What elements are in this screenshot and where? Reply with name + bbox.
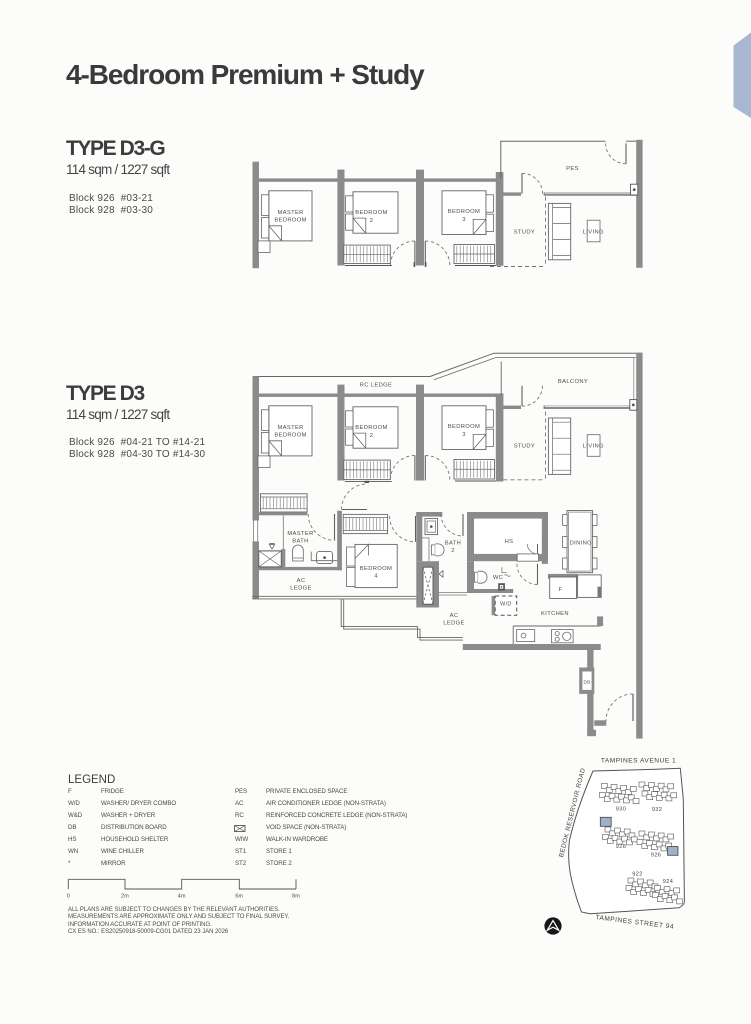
- svg-text:2m: 2m: [121, 894, 129, 900]
- svg-text:BEDROOM: BEDROOM: [355, 210, 387, 216]
- svg-text:LEDGE: LEDGE: [443, 621, 464, 627]
- svg-text:924: 924: [663, 879, 673, 885]
- svg-text:BEDROOM: BEDROOM: [274, 217, 306, 223]
- svg-text:BEDROOM: BEDROOM: [274, 432, 306, 438]
- svg-text:3: 3: [462, 217, 466, 223]
- svg-text:DB: DB: [583, 680, 590, 685]
- svg-text:3: 3: [462, 432, 466, 438]
- svg-text:F: F: [559, 587, 563, 593]
- svg-text:2: 2: [370, 218, 374, 224]
- svg-text:MASTER: MASTER: [277, 210, 303, 216]
- svg-text:RC LEDGE: RC LEDGE: [360, 383, 392, 389]
- svg-text:PES: PES: [566, 166, 579, 172]
- svg-text:KITCHEN: KITCHEN: [541, 611, 569, 617]
- svg-text:TAMPINES AVENUE 1: TAMPINES AVENUE 1: [601, 758, 676, 765]
- svg-text:928: 928: [616, 844, 626, 850]
- svg-text:STUDY: STUDY: [514, 444, 535, 450]
- svg-text:930: 930: [616, 807, 626, 813]
- svg-text:BEDROOM: BEDROOM: [448, 209, 480, 215]
- svg-text:STUDY: STUDY: [514, 230, 535, 236]
- svg-text:BATH: BATH: [292, 538, 308, 544]
- svg-text:W/D: W/D: [500, 602, 512, 608]
- svg-text:4: 4: [374, 574, 378, 580]
- svg-text:BATH: BATH: [445, 541, 461, 547]
- svg-text:DINING: DINING: [570, 541, 593, 547]
- svg-text:2: 2: [451, 548, 455, 554]
- svg-text:HS: HS: [505, 539, 514, 545]
- svg-text:WC: WC: [493, 575, 503, 581]
- svg-text:6m: 6m: [235, 894, 243, 900]
- svg-text:0: 0: [67, 894, 70, 900]
- svg-text:922: 922: [632, 871, 642, 877]
- svg-text:TAMPINES STREET 94: TAMPINES STREET 94: [595, 914, 674, 931]
- svg-text:BALCONY: BALCONY: [558, 379, 588, 385]
- svg-text:LEDGE: LEDGE: [290, 585, 311, 591]
- svg-text:LIVING: LIVING: [583, 230, 604, 236]
- svg-text:BEDROOM: BEDROOM: [448, 424, 480, 430]
- svg-text:BEDROOM: BEDROOM: [360, 566, 392, 572]
- svg-text:8m: 8m: [292, 894, 300, 900]
- svg-text:4m: 4m: [178, 894, 186, 900]
- svg-text:2: 2: [370, 433, 374, 439]
- svg-text:LIVING: LIVING: [583, 444, 604, 450]
- svg-text:926: 926: [651, 853, 661, 859]
- svg-text:AC: AC: [450, 613, 459, 619]
- svg-text:MASTER: MASTER: [277, 425, 303, 431]
- svg-text:932: 932: [652, 807, 662, 813]
- svg-text:AC: AC: [297, 578, 306, 584]
- svg-text:MASTER: MASTER: [287, 531, 313, 537]
- svg-text:BEDROOM: BEDROOM: [355, 425, 387, 431]
